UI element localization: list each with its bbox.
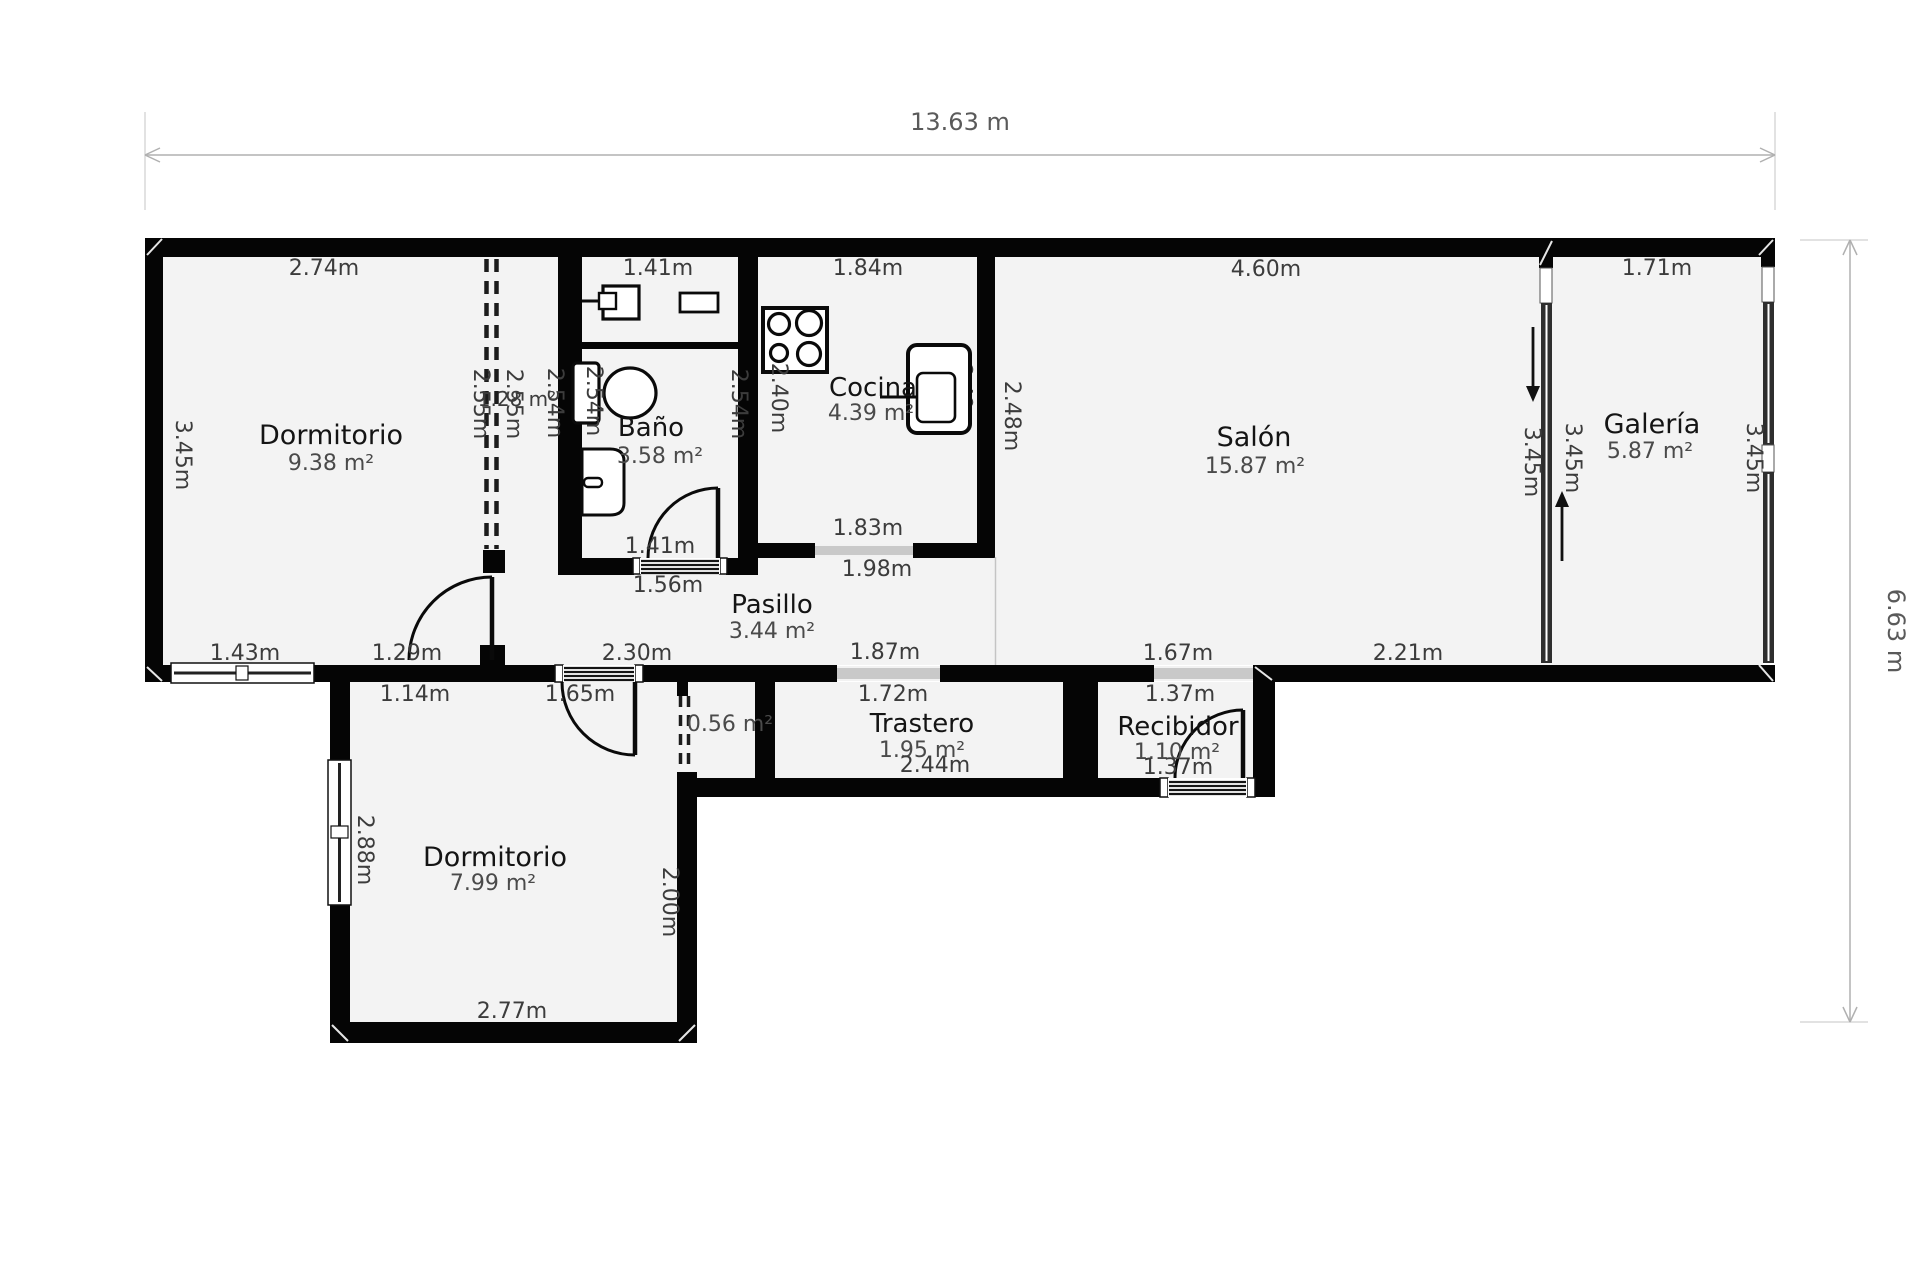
- dim-salon-bottom-right: 2.21m: [1373, 641, 1443, 666]
- dim-kitchen-left: 2.40m: [766, 363, 791, 433]
- dim-galeria-left: 3.45m: [1560, 423, 1585, 493]
- closet-block: [677, 682, 688, 696]
- dim-dorm1-left: 3.45m: [170, 420, 195, 490]
- wall-dorm2-bottom: [330, 1022, 697, 1043]
- room-area: 15.87 m²: [1205, 454, 1305, 479]
- room-name: Salón: [1217, 422, 1292, 453]
- dim-salon-left: 2.48m: [999, 381, 1024, 451]
- closet-area-label: 0.56 m²: [687, 712, 773, 737]
- dim-wardrobe-left: 2.55m: [468, 369, 493, 439]
- recibidor-opening: [1154, 666, 1253, 681]
- dim-dorm2-bottom: 2.77m: [477, 999, 547, 1024]
- wall-bath-divider: [582, 342, 738, 349]
- wall-bottom-seg: [643, 665, 837, 682]
- dim-dorm1-door: 1.29m: [372, 641, 442, 666]
- dim-recibidor-width: 1.37m: [1143, 755, 1213, 780]
- dim-trastero-top: 1.72m: [858, 682, 928, 707]
- overall-height-label: 6.63 m: [1882, 589, 1910, 673]
- room-name: Dormitorio: [259, 420, 403, 451]
- wardrobe-end-block: [483, 550, 505, 573]
- dim-bath-top: 1.41m: [623, 256, 693, 281]
- dim-kitchen-top: 1.84m: [833, 256, 903, 281]
- wall-bottom-seg: [1253, 665, 1775, 682]
- room-name: Trastero: [869, 709, 974, 739]
- dim-salon-top: 4.60m: [1231, 257, 1301, 282]
- floor-plan: 13.63 m 6.63 m: [0, 0, 1920, 1280]
- overall-width-dimension: 13.63 m: [145, 108, 1775, 210]
- dim-galeria-top: 1.71m: [1622, 256, 1692, 281]
- room-name: Dormitorio: [423, 842, 567, 873]
- dim-kitchen-bottom: 1.83m: [833, 516, 903, 541]
- overall-height-dimension: 6.63 m: [1800, 240, 1910, 1022]
- dim-salon-bottom-left: 1.67m: [1143, 641, 1213, 666]
- dim-wardrobe-right: 2.54m: [542, 368, 567, 438]
- room-name: Pasillo: [731, 590, 813, 620]
- dim-bath-left: 2.54m: [581, 366, 606, 436]
- wall-kitchen-bottom-l: [758, 543, 815, 558]
- dim-dorm2-top: 1.14m: [380, 682, 450, 707]
- wall-bath-bottom-l: [558, 558, 634, 575]
- wall-bottom-seg: [940, 665, 1154, 682]
- room-name: Galería: [1604, 409, 1701, 440]
- dim-dorm2-left: 2.88m: [352, 815, 377, 885]
- wall-lower-bottom-seg: [677, 778, 1160, 797]
- room-area: 7.99 m²: [450, 871, 536, 896]
- dim-trastero-width: 2.44m: [900, 753, 970, 778]
- overall-width-label: 13.63 m: [910, 108, 1010, 136]
- window-dorm2-left: [328, 760, 351, 905]
- wall-left: [145, 238, 163, 682]
- dim-bath-bottom: 1.41m: [625, 534, 695, 559]
- room-area: 4.39 m²: [828, 401, 914, 426]
- dim-pasillo-bottom-right: 1.87m: [850, 640, 920, 665]
- dim-dorm2-right: 2.00m: [657, 867, 682, 937]
- dim-recibidor-top: 1.37m: [1145, 682, 1215, 707]
- wall-lower-bottom-seg: [1255, 778, 1275, 797]
- room-area: 5.87 m²: [1607, 439, 1693, 464]
- room-galeria: Galería 5.87 m²: [1604, 409, 1701, 464]
- room-pasillo: Pasillo 3.44 m²: [729, 590, 815, 644]
- dim-pasillo-bottom-left: 2.30m: [602, 641, 672, 666]
- room-area: 9.38 m²: [288, 451, 374, 476]
- trastero-opening: [837, 666, 940, 681]
- room-name: Recibidor: [1117, 712, 1239, 742]
- dim-dorm1-top: 2.74m: [289, 256, 359, 281]
- window-dorm1-bottom: [171, 663, 314, 683]
- wall-recibidor-right: [1253, 665, 1275, 797]
- dim-bath-door: 1.56m: [633, 573, 703, 598]
- room-area: 3.58 m²: [617, 444, 703, 469]
- room-name: Baño: [618, 413, 684, 443]
- dim-dorm2-door: 1.65m: [545, 682, 615, 707]
- floor-plan-page: 13.63 m 6.63 m: [0, 0, 1920, 1280]
- dim-salon-right: 3.45m: [1519, 427, 1544, 497]
- kitchen-opening: [815, 544, 913, 557]
- dim-galeria-right: 3.45m: [1741, 423, 1766, 493]
- room-salon: Salón 15.87 m²: [1205, 422, 1305, 479]
- wall-top: [145, 238, 1775, 257]
- room-cocina: Cocina 4.39 m²: [828, 373, 917, 426]
- dim-dorm1-bottom: 1.43m: [210, 641, 280, 666]
- wall-kitchen-right: [977, 238, 995, 557]
- dim-bath-right: 2.54m: [726, 369, 751, 439]
- shelf-icon: [680, 293, 718, 312]
- dim-kitchen-opening: 1.98m: [842, 557, 912, 582]
- room-area: 3.44 m²: [729, 619, 815, 644]
- room-name: Cocina: [829, 373, 917, 403]
- dim-wardrobe-inner: 2.55m: [501, 369, 526, 439]
